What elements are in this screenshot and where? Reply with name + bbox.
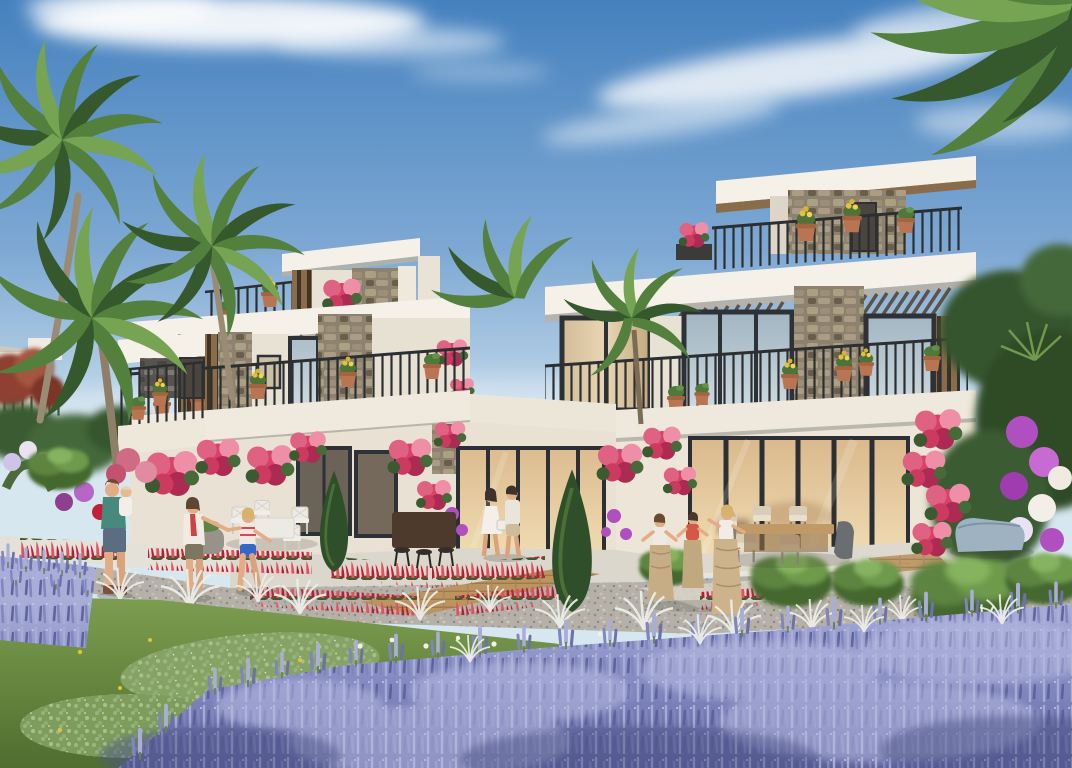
middle-parapet-block xyxy=(418,256,440,304)
render-canvas xyxy=(0,0,1072,768)
roofbox-wood-slats xyxy=(292,270,312,314)
balcony-pot-6 xyxy=(923,345,941,371)
mid-balcony-pot-5 xyxy=(423,353,441,379)
roof-pot-green xyxy=(897,207,915,233)
villa-garden-render xyxy=(0,0,1072,768)
balcony-pot-2 xyxy=(694,383,709,405)
